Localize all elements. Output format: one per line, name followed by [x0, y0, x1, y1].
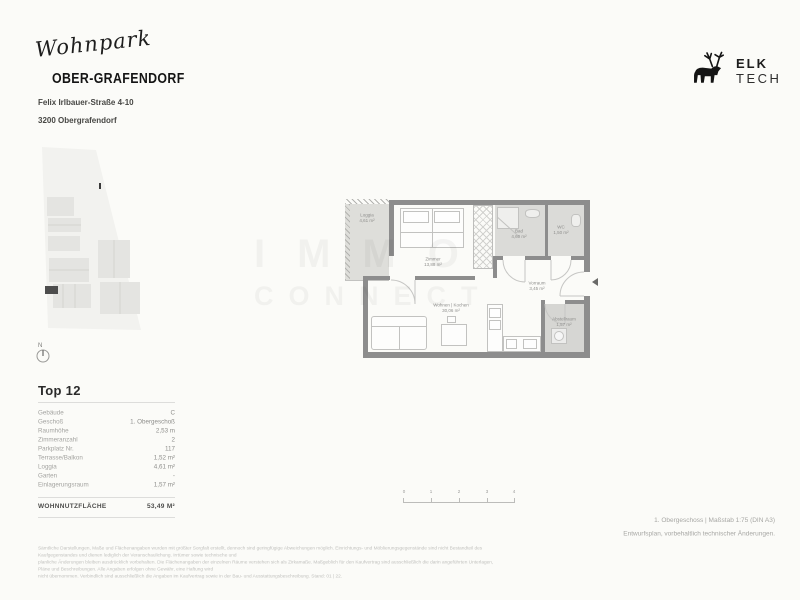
- site-marker: [99, 183, 101, 189]
- svg-text:N: N: [38, 343, 42, 349]
- scale-4: 4: [513, 489, 516, 494]
- scale-3: 3: [486, 489, 489, 494]
- table-row: Parkplatz Nr.117: [38, 444, 175, 453]
- site-plan: N: [33, 140, 148, 370]
- scale-2: 2: [458, 489, 461, 494]
- label-vorraum: Vorraum3,45 m²: [507, 281, 567, 292]
- legal-disclaimer: Sämtliche Darstellungen, Maße und Fläche…: [38, 545, 503, 569]
- logo-line-1: ELK: [736, 56, 781, 71]
- table-row: Garten-: [38, 471, 175, 480]
- site-highlighted-unit: [45, 286, 58, 294]
- scale-1: 1: [430, 489, 433, 494]
- elk-icon: [680, 50, 734, 96]
- floor-plan: Loggia4,61 m² Zimmer13,88 m² Bad4,60 m² …: [345, 196, 595, 368]
- table-row: GebäudeC: [38, 408, 175, 417]
- logo-text: ELK TECH: [736, 56, 781, 86]
- disclaimer-line-3: nicht übernommen. Verbindlich sind aussc…: [38, 573, 503, 580]
- table-row: Geschoß1. Obergeschoß: [38, 417, 175, 426]
- label-loggia: Loggia4,61 m²: [337, 213, 397, 224]
- table-row: Zimmeranzahl2: [38, 435, 175, 444]
- divider: [38, 402, 175, 403]
- company-logo: ELK TECH: [680, 50, 790, 100]
- plan-note-draft: Entwurfsplan, vorbehaltlich technischer …: [575, 527, 775, 541]
- disclaimer-line-1: Sämtliche Darstellungen, Maße und Fläche…: [38, 545, 503, 559]
- label-wohnen-kochen: Wohnen | Kochen30,06 m²: [421, 303, 481, 314]
- entry-arrow-icon: [592, 278, 598, 286]
- total-area-row: WOHNNUTZFLÄCHE 53,49 M²: [38, 502, 175, 510]
- unit-table-rows: GebäudeC Geschoß1. Obergeschoß Raumhöhe2…: [38, 408, 175, 489]
- divider: [38, 497, 175, 498]
- table-row: Terrasse/Balkon1,52 m²: [38, 453, 175, 462]
- scale-bar: 0 1 2 3 4: [403, 489, 515, 507]
- project-name-title: OBER-GRAFENDORF: [52, 69, 185, 86]
- divider: [38, 517, 175, 518]
- scale-0: 0: [403, 489, 406, 494]
- disclaimer-line-2: planliche Änderungen bleiben ausdrücklic…: [38, 559, 503, 573]
- address-line-2: 3200 Obergrafendorf: [38, 112, 134, 130]
- label-zimmer: Zimmer13,88 m²: [403, 257, 463, 268]
- total-area-label: WOHNNUTZFLÄCHE: [38, 502, 106, 510]
- label-abstellraum: Abstellraum1,57 m²: [534, 317, 594, 328]
- table-row: Loggia4,61 m²: [38, 462, 175, 471]
- table-row: Raumhöhe2,53 m: [38, 426, 175, 435]
- north-compass-icon: N: [37, 343, 49, 362]
- project-script-title: Wohnpark: [34, 26, 152, 62]
- unit-title: Top 12: [38, 383, 81, 398]
- table-row: Einlagerungsraum1,57 m²: [38, 480, 175, 489]
- address-line-1: Felix Irlbauer-Straße 4-10: [38, 94, 134, 112]
- label-wc: WC1,50 m²: [531, 225, 591, 236]
- scale-bar-line: [403, 502, 515, 503]
- total-area-value: 53,49 M²: [147, 502, 175, 510]
- project-address: Felix Irlbauer-Straße 4-10 3200 Obergraf…: [38, 94, 134, 130]
- plan-note-scale: 1. Obergeschoss | Maßstab 1:75 (DIN A3): [575, 513, 775, 527]
- plan-notes: 1. Obergeschoss | Maßstab 1:75 (DIN A3) …: [575, 513, 775, 543]
- logo-line-2: TECH: [736, 71, 781, 86]
